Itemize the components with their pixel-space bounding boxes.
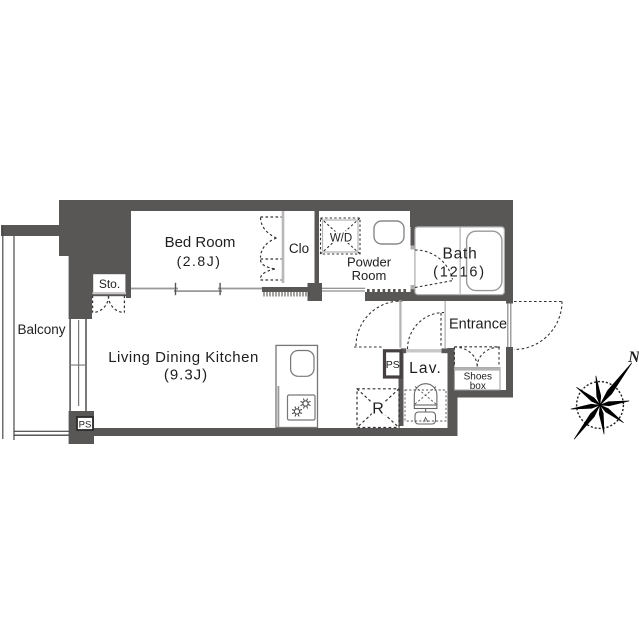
svg-text:(9.3J): (9.3J) (164, 367, 208, 384)
svg-text:box: box (470, 381, 486, 392)
svg-text:Clo: Clo (289, 241, 309, 256)
svg-text:Balcony: Balcony (17, 322, 65, 337)
svg-text:Room: Room (352, 268, 387, 283)
svg-text:Sto.: Sto. (99, 277, 120, 291)
svg-text:N: N (627, 349, 639, 366)
svg-text:W/D: W/D (330, 233, 352, 245)
svg-text:PS: PS (79, 420, 92, 431)
svg-text:(1216): (1216) (433, 265, 486, 281)
svg-text:PS: PS (386, 359, 400, 371)
svg-text:Bed Room: Bed Room (165, 234, 236, 251)
svg-text:(2.8J): (2.8J) (177, 253, 222, 269)
svg-text:Bath: Bath (442, 246, 477, 263)
svg-text:Living Dining Kitchen: Living Dining Kitchen (108, 349, 259, 366)
svg-text:Entrance: Entrance (449, 317, 507, 333)
svg-text:R: R (372, 401, 384, 418)
svg-text:Lav.: Lav. (409, 360, 442, 377)
